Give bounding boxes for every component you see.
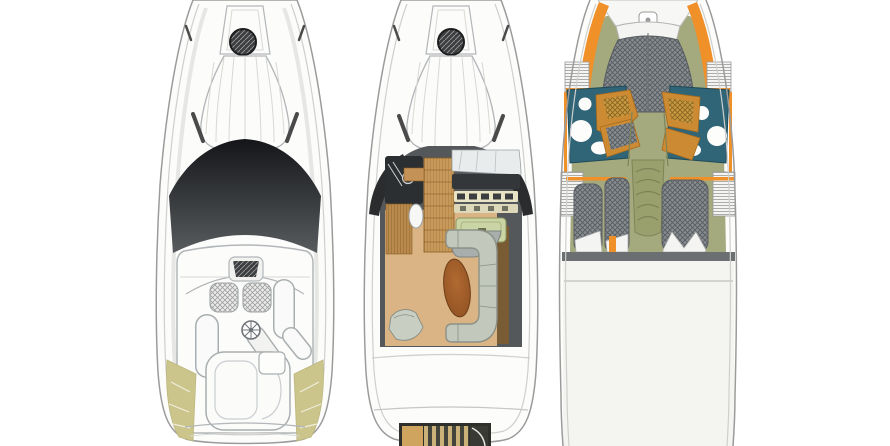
helm-pod-vents [233,261,259,277]
bulkhead-band [562,252,735,261]
stern-table [259,352,285,374]
head-port-sink [579,98,592,111]
steering-wheel-hub [249,328,253,332]
companion-seat [409,204,423,228]
khaki-trim-port [167,360,196,441]
head-starboard-basin [707,126,727,146]
engine-hatch-stairs [424,426,469,446]
yacht-floorplan-image [0,0,890,446]
helm-seat-port [210,283,238,312]
exterior-deck-plan [156,0,333,444]
locker-bow-port [565,62,589,92]
bow-hatch [230,29,256,55]
wood-shelf [404,168,424,181]
windshield-glass [452,150,521,175]
locker-bow-starboard [707,62,731,92]
sofa-back-strip [497,226,509,344]
wood-floor-strip [386,204,412,254]
helm-dashboard [452,174,520,189]
head-port-basin [570,120,592,142]
hull-lower-tint [563,261,734,446]
lower-deck-plan [560,0,737,446]
engine-hatch-tan [402,426,423,446]
floorplan-canvas [0,0,890,446]
orange-post [609,236,616,253]
khaki-trim-starboard [294,360,323,441]
main-deck-plan [364,0,537,446]
bow-hatch [438,29,464,55]
starboard-bench-corner [291,336,303,351]
helm-seat-starboard [243,283,271,312]
